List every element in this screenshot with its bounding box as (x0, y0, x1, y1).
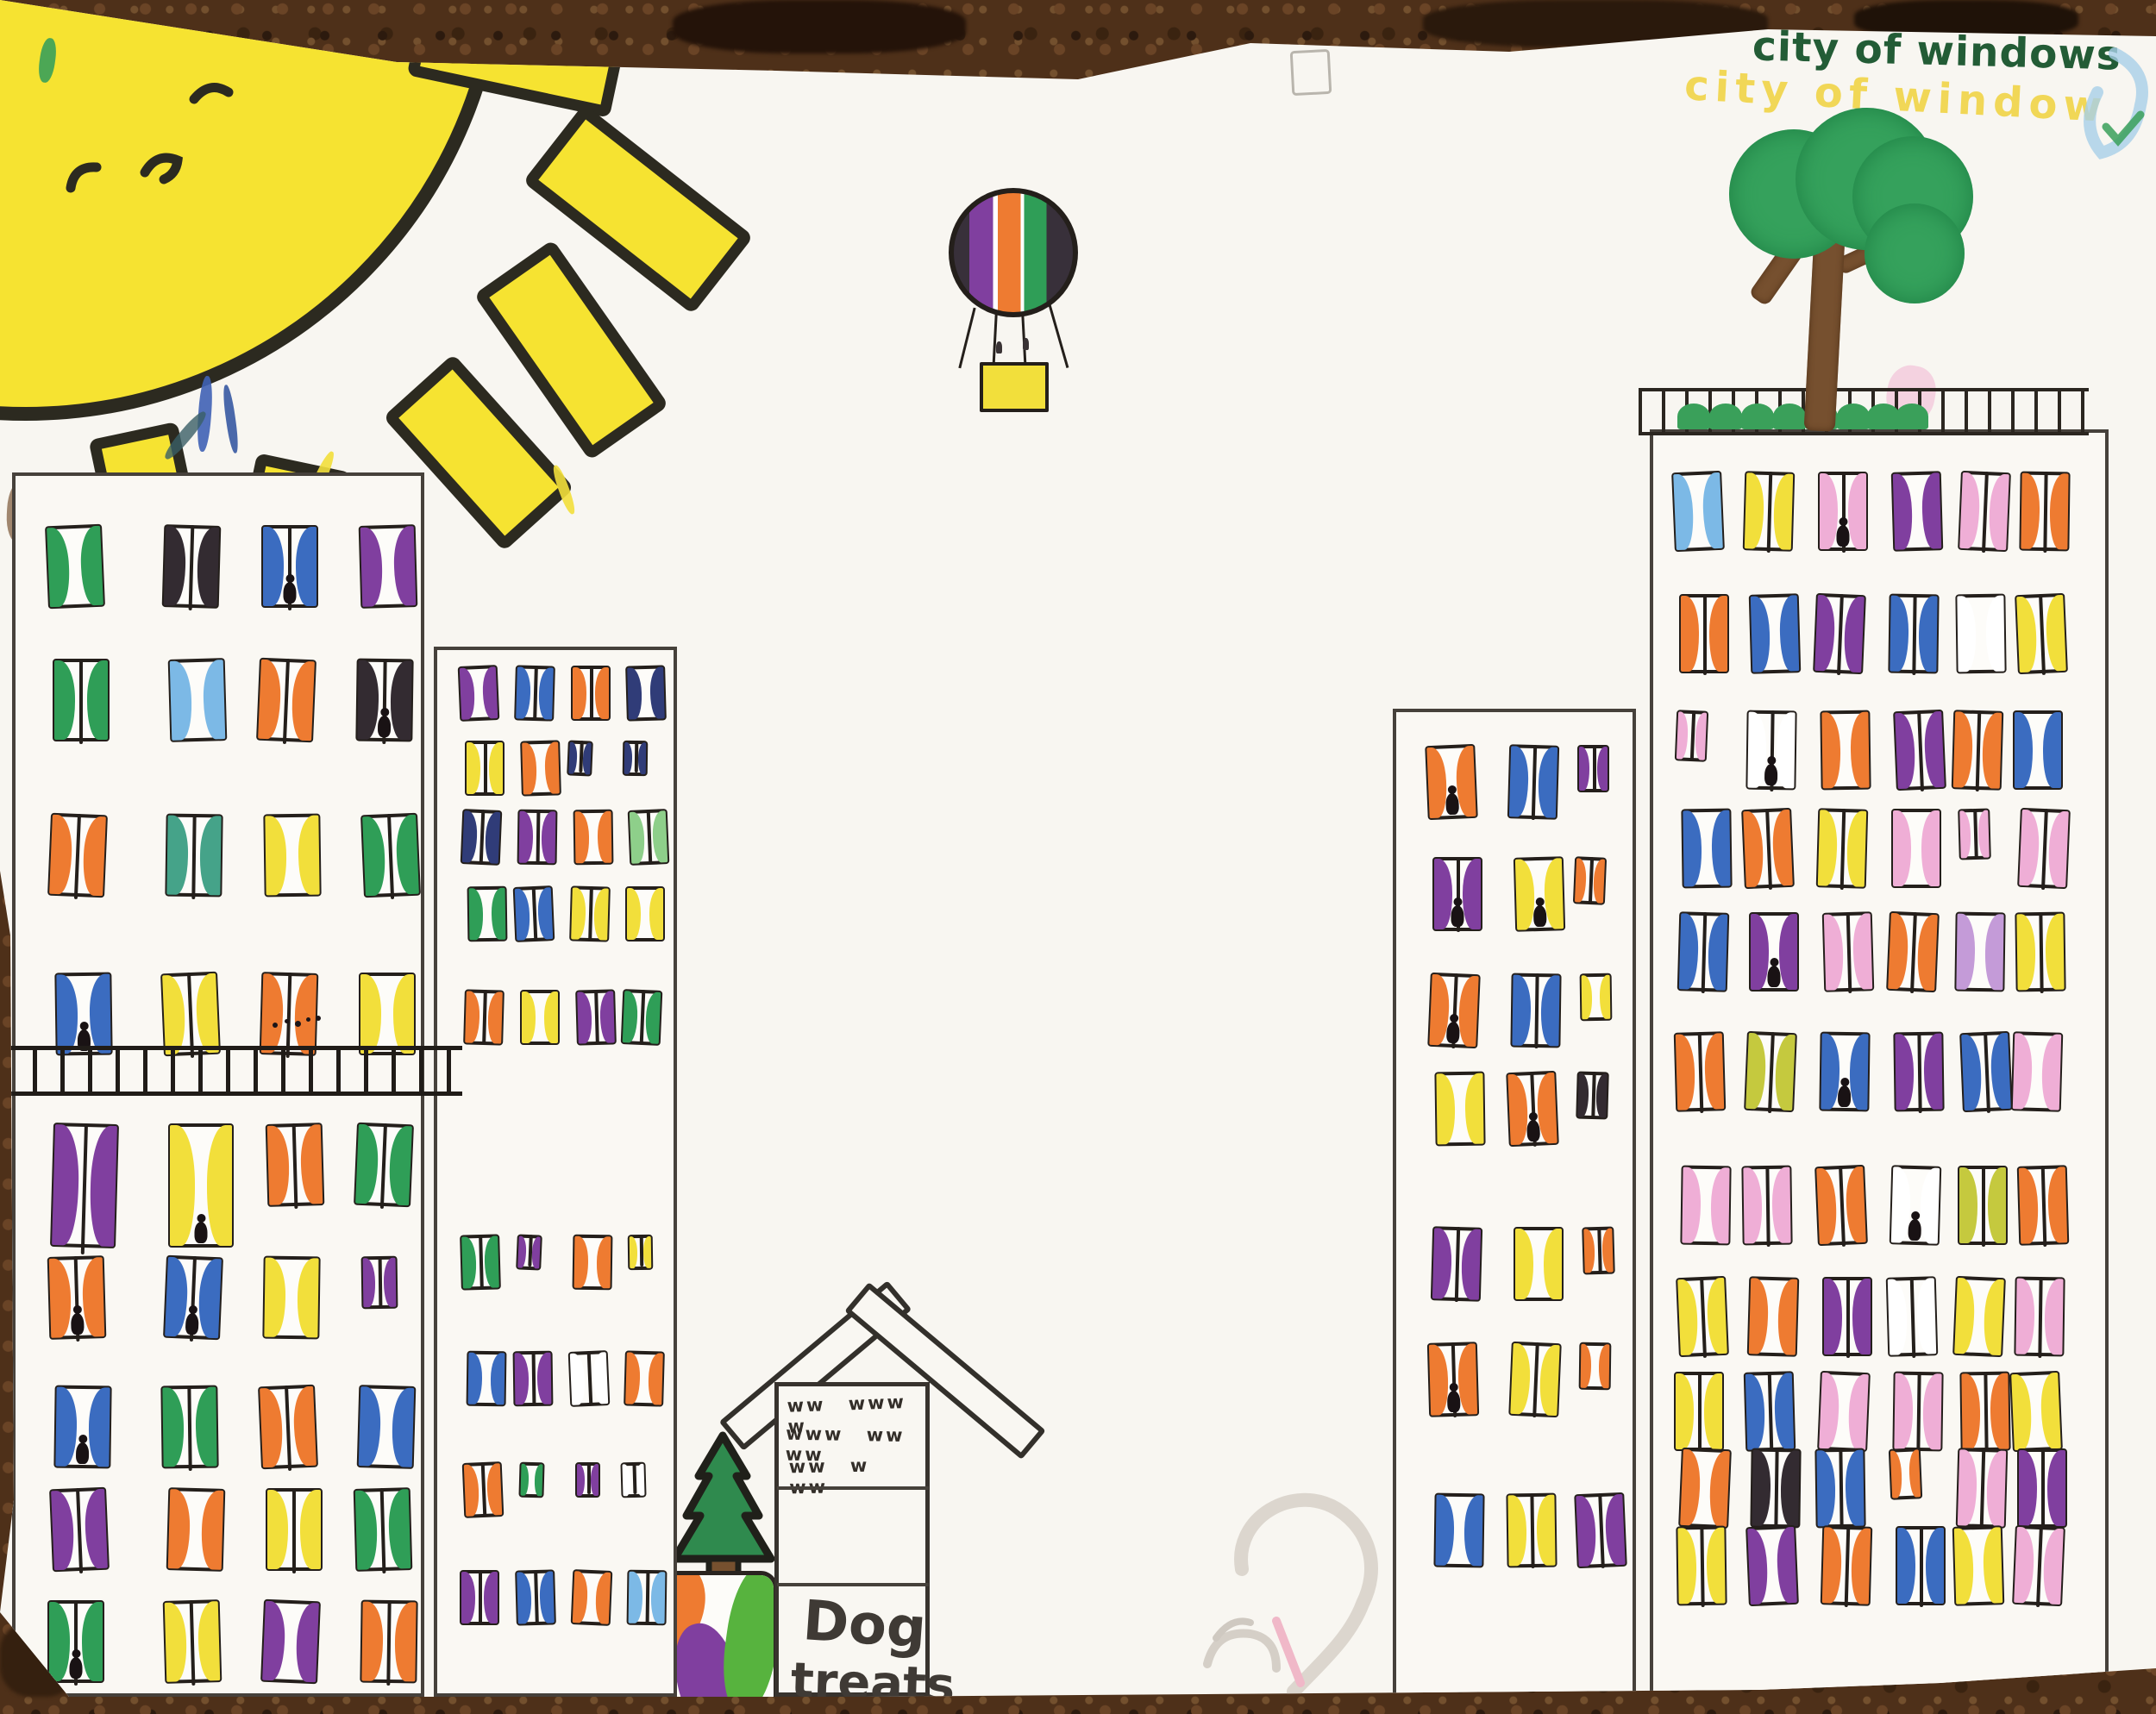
curtain-left (49, 1602, 70, 1681)
window (1891, 809, 1941, 888)
curtain-right (489, 742, 503, 794)
window-mullion (1909, 1277, 1915, 1358)
curtain-right (1845, 1450, 1864, 1526)
window-mullion (479, 810, 486, 864)
curtain-left (170, 1125, 195, 1246)
window (1434, 1072, 1485, 1147)
window (47, 1600, 104, 1683)
window (355, 659, 413, 742)
window (460, 1234, 501, 1290)
curtain-right (1709, 596, 1727, 672)
curtain-right (1598, 1344, 1609, 1388)
curtain-left (517, 1235, 526, 1267)
window-mullion (640, 1235, 644, 1267)
curtain-right (1457, 975, 1478, 1047)
curtain-right (89, 974, 111, 1054)
curtain-left (1515, 1229, 1533, 1299)
window (567, 740, 593, 776)
window (45, 524, 105, 610)
crayon-mark (221, 385, 240, 454)
window (1958, 1166, 2008, 1245)
curtain-right (482, 666, 498, 719)
window-mullion (1975, 710, 1981, 791)
curtain-left (464, 1464, 479, 1517)
curtain-right (487, 991, 503, 1043)
window-mullion (379, 1256, 383, 1307)
curtain-left (1895, 1034, 1914, 1110)
window (162, 524, 222, 609)
curtain-left (1512, 975, 1531, 1046)
building-fourth (1393, 709, 1636, 1697)
window-mullion (481, 1462, 487, 1517)
roof-grass-tuft (1709, 403, 1742, 429)
window (361, 1256, 398, 1310)
window (575, 1462, 600, 1498)
window (1425, 744, 1478, 820)
window (163, 1599, 222, 1684)
cork-dark-patch (673, 0, 966, 53)
window-mullion (187, 973, 194, 1058)
curtain-right (1695, 712, 1707, 760)
curtain-right (1776, 712, 1795, 788)
curtain-right (1851, 1528, 1871, 1605)
curtain-left (1747, 1528, 1769, 1605)
curtain-left (168, 1489, 191, 1569)
window-mullion (286, 973, 292, 1058)
window (1506, 1071, 1559, 1147)
curtain-left (362, 816, 386, 896)
window-mullion (1531, 745, 1536, 820)
window-mullion (479, 1235, 484, 1289)
window (1676, 1276, 1729, 1357)
curtain-left (260, 1387, 284, 1467)
person-in-window (1764, 764, 1777, 785)
curtain-left (355, 1124, 379, 1204)
window (1744, 1371, 1796, 1452)
window (1750, 1448, 1801, 1529)
curtain-right (1706, 1278, 1727, 1354)
window (49, 1487, 110, 1573)
curtain-right (395, 815, 419, 895)
building-second (434, 647, 677, 1697)
window-mullion (1765, 1166, 1770, 1247)
curtain-left (1681, 596, 1699, 672)
curtain-right (1985, 596, 2004, 672)
window-mullion (635, 741, 639, 773)
curtain-right (1908, 1449, 1921, 1497)
curtain-left (519, 811, 534, 863)
curtain-right (539, 1571, 555, 1623)
window-mullion (292, 1123, 298, 1209)
window (1427, 973, 1481, 1048)
curtain-right (207, 1125, 232, 1246)
window (1577, 745, 1609, 792)
window (1743, 471, 1796, 552)
curtain-left (1676, 1373, 1694, 1449)
curtain-right (2042, 1528, 2064, 1605)
curtain-right (597, 1236, 611, 1288)
window (1958, 808, 1991, 860)
curtain-left (2019, 1167, 2039, 1244)
curtain-right (544, 741, 560, 793)
window-mullion (1767, 1032, 1774, 1113)
curtain-left (468, 1353, 483, 1404)
curtain-right (1916, 1278, 1936, 1354)
window-mullion (285, 1386, 291, 1471)
balloon-passenger (996, 341, 1002, 353)
window (359, 524, 418, 609)
window-mullion (1454, 1227, 1459, 1302)
curtain-left (516, 666, 531, 718)
window (1886, 1276, 1939, 1357)
curtain-left (166, 816, 189, 895)
curtain-left (1819, 1373, 1840, 1449)
curtain-right (1774, 1373, 1794, 1449)
window-mullion (1844, 1526, 1850, 1607)
curtain-left (515, 1353, 530, 1404)
curtain-left (1961, 1373, 1980, 1449)
window (258, 1385, 318, 1470)
window (47, 813, 108, 898)
window (165, 814, 222, 898)
curtain-left (573, 667, 586, 719)
curtain-left (1435, 1495, 1454, 1566)
curtain-left (1510, 1343, 1531, 1415)
curtain-left (264, 1258, 286, 1337)
balloon-passenger (1023, 338, 1029, 350)
curtain-left (1745, 472, 1764, 549)
window (2019, 472, 2070, 552)
curtain-right (1984, 914, 2003, 990)
curtain-left (1958, 1449, 1977, 1526)
curtain-left (1888, 1279, 1908, 1355)
window-mullion (1701, 912, 1707, 993)
window (1674, 1031, 1727, 1112)
dog-treats-shop: ww www w www ww ww ww w ww Dog treats (774, 1382, 930, 1697)
window (520, 990, 560, 1045)
curtain-left (267, 1125, 291, 1205)
window-mullion (2040, 1166, 2046, 1247)
curtain-left (47, 527, 71, 607)
curtain-right (295, 1602, 319, 1682)
curtain-right (2047, 810, 2069, 887)
curtain-right (537, 1353, 552, 1404)
curtain-right (651, 1572, 666, 1623)
window (625, 665, 667, 721)
curtain-right (1771, 1167, 1790, 1243)
window-mullion (1765, 809, 1772, 890)
window-mullion (1589, 857, 1594, 903)
curtain-left (54, 660, 75, 740)
curtain-left (2019, 810, 2040, 886)
curtain-right (1593, 859, 1605, 903)
curtain-right (1539, 1344, 1559, 1416)
window (467, 886, 508, 942)
window-mullion (81, 1123, 88, 1254)
curtain-right (296, 527, 317, 606)
curtain-right (87, 660, 108, 740)
window-mullion (1984, 1372, 1988, 1453)
curtain-left (2016, 596, 2038, 672)
curtain-right (297, 1258, 319, 1337)
window (47, 1255, 107, 1340)
curtain-right (82, 816, 106, 896)
shop-divider (777, 1486, 929, 1490)
curtain-right (1544, 1229, 1562, 1299)
pencil-square-doodle (1290, 49, 1332, 96)
sun-face (52, 52, 293, 241)
window-mullion (1767, 1372, 1773, 1453)
curtain-left (51, 1490, 75, 1570)
window-mullion (2039, 912, 2043, 993)
curtain-left (1582, 975, 1593, 1019)
window-mullion (532, 886, 538, 941)
footstep-dot (273, 1023, 278, 1028)
window (628, 809, 670, 866)
curtain-right (2045, 914, 2064, 990)
curtain-left (622, 1464, 630, 1496)
curtain-left (1894, 1373, 1913, 1449)
curtain-left (1961, 1034, 1983, 1110)
window (1814, 1448, 1865, 1529)
window-mullion (531, 1351, 536, 1405)
window-mullion (1917, 710, 1924, 791)
window-mullion (1916, 1372, 1921, 1453)
curtain-left (623, 991, 638, 1043)
curtain-left (1577, 1073, 1589, 1117)
window (2011, 1031, 2064, 1112)
curtain-right (2043, 712, 2061, 788)
curtain-left (1432, 1228, 1452, 1299)
window-mullion (482, 990, 487, 1044)
window (625, 886, 665, 941)
curtain-left (571, 887, 586, 939)
window (627, 1570, 667, 1626)
window (2015, 912, 2065, 992)
curtain-right (1773, 473, 1793, 550)
planter-green-wave (716, 1571, 778, 1709)
curtain-left (630, 811, 645, 864)
window-mullion (484, 741, 487, 795)
footstep-dot (285, 1019, 289, 1023)
curtain-left (1959, 472, 1981, 549)
window-mullion (647, 810, 653, 864)
roof-grass-tuft (1741, 403, 1774, 429)
window (623, 741, 649, 776)
window (518, 1462, 544, 1498)
person-in-window (76, 1442, 89, 1464)
curtain-right (542, 811, 556, 863)
window (1745, 1525, 1799, 1606)
window (463, 989, 505, 1045)
curtain-right (292, 1386, 317, 1467)
curtain-left (49, 815, 73, 895)
person-in-window (1446, 1022, 1460, 1044)
curtain-right (595, 1572, 611, 1624)
curtain-left (55, 1387, 78, 1467)
curtain-left (1745, 1033, 1767, 1110)
curtain-left (1890, 596, 1908, 672)
curtain-left (629, 1572, 643, 1623)
window-mullion (1979, 1448, 1985, 1529)
curtain-left (262, 1601, 286, 1681)
curtain-left (1954, 1528, 1974, 1605)
curtain-right (88, 1387, 110, 1467)
window (2009, 1371, 2063, 1452)
curtain-right (394, 1602, 417, 1681)
window-mullion (2041, 1448, 2045, 1529)
curtain-left (165, 1602, 188, 1682)
window (2013, 710, 2063, 790)
curtain-right (1704, 1373, 1722, 1449)
person-in-window (284, 582, 297, 604)
curtain-left (1890, 1450, 1902, 1498)
curtain-left (361, 1602, 384, 1681)
curtain-left (461, 1236, 477, 1288)
curtain-right (89, 1125, 116, 1247)
curtain-right (1983, 1527, 2002, 1604)
window (1747, 1276, 1800, 1357)
window (1952, 1276, 2006, 1357)
curtain-left (1893, 810, 1911, 886)
window (1573, 856, 1607, 905)
curtain-right (1843, 596, 1865, 672)
window-mullion (1534, 973, 1539, 1048)
curtain-left (1509, 746, 1529, 817)
curtain-left (258, 660, 282, 740)
curtain-left (2013, 1033, 2033, 1110)
curtain-right (299, 1124, 323, 1204)
window-mullion (1917, 1032, 1921, 1113)
curtain-left (2019, 1450, 2037, 1526)
curtain-left (1751, 914, 1769, 990)
curtain-left (1677, 1279, 1699, 1355)
curtain-right (387, 1489, 411, 1569)
window (628, 1235, 654, 1270)
window (458, 665, 500, 722)
curtain-left (1434, 859, 1452, 929)
window-mullion (1700, 1526, 1704, 1607)
window (462, 1461, 505, 1518)
window-mullion (283, 659, 290, 744)
curtain-right (1921, 810, 1940, 886)
curtain-right (645, 991, 661, 1044)
window (1893, 710, 1946, 791)
curtain-left (1679, 913, 1699, 990)
curtain-right (1544, 858, 1564, 929)
curtain-right (2047, 1450, 2065, 1526)
window (166, 1487, 226, 1572)
curtain-right (390, 660, 412, 740)
curtain-right (293, 974, 317, 1054)
curtain-right (1990, 1033, 2011, 1110)
curtain-right (1702, 472, 1723, 549)
window (1892, 1372, 1943, 1452)
window (1579, 1342, 1612, 1391)
curtain-right (652, 810, 667, 863)
window (360, 1600, 417, 1684)
window (260, 1599, 321, 1685)
curtain-left (357, 660, 379, 740)
curtain-left (2021, 473, 2040, 549)
curtain-left (56, 974, 78, 1054)
curtain-left (1816, 1167, 1838, 1244)
window (1431, 1226, 1482, 1302)
curtain-left (461, 1572, 475, 1623)
window (1958, 471, 2011, 552)
window (461, 809, 503, 866)
window-mullion (1697, 1032, 1703, 1113)
curtain-left (517, 1572, 532, 1623)
window-mullion (380, 1123, 387, 1209)
window (1506, 1493, 1557, 1568)
window-mullion (588, 886, 593, 941)
window (460, 1570, 499, 1625)
window (256, 658, 317, 743)
curtain-right (2049, 473, 2068, 549)
window (1956, 1448, 2009, 1529)
window (513, 1351, 554, 1407)
curtain-right (1595, 1073, 1608, 1117)
curtain-right (388, 1125, 412, 1205)
curtain-right (197, 1601, 220, 1681)
curtain-right (1916, 914, 1938, 991)
curtain-right (1986, 1450, 2006, 1527)
window-mullion (188, 1386, 192, 1471)
curtain-right (1706, 1528, 1725, 1604)
curtain-left (170, 660, 193, 741)
curtain-left (1822, 1527, 1842, 1604)
curtain-right (1988, 1167, 2006, 1243)
window-mullion (192, 814, 197, 899)
window-mullion (1591, 1072, 1595, 1117)
curtain-left (1682, 1167, 1701, 1243)
curtain-right (1771, 810, 1793, 886)
curtain-left (1576, 1495, 1596, 1567)
window (571, 1569, 613, 1626)
curtain-right (486, 1463, 502, 1516)
window-mullion (1698, 1372, 1702, 1453)
curtain-left (355, 1490, 379, 1570)
person-in-window (1451, 905, 1464, 927)
window-mullion (1774, 1448, 1778, 1529)
curtain-right (1850, 712, 1869, 788)
curtain-right (1540, 975, 1559, 1046)
curtain-right (1536, 1495, 1555, 1566)
window (1576, 1071, 1609, 1119)
curtain-left (1893, 473, 1913, 550)
curtain-right (2045, 595, 2066, 672)
window (1893, 1032, 1944, 1112)
window-mullion (1846, 912, 1852, 993)
window (1582, 1226, 1615, 1274)
curtain-right (393, 974, 414, 1054)
curtain-right (1982, 712, 2002, 789)
window (1814, 1165, 1868, 1246)
window (2015, 593, 2068, 674)
window-mullion (387, 814, 394, 899)
curtain-left (1816, 1450, 1835, 1526)
curtain-right (1923, 711, 1945, 788)
person-in-window (1838, 1085, 1851, 1107)
window (1749, 593, 1802, 674)
curtain-right (1601, 1229, 1614, 1273)
curtain-right (636, 1464, 645, 1496)
window (1819, 1032, 1870, 1112)
window (1675, 710, 1708, 761)
window (263, 814, 321, 898)
curtain-left (1677, 711, 1689, 759)
